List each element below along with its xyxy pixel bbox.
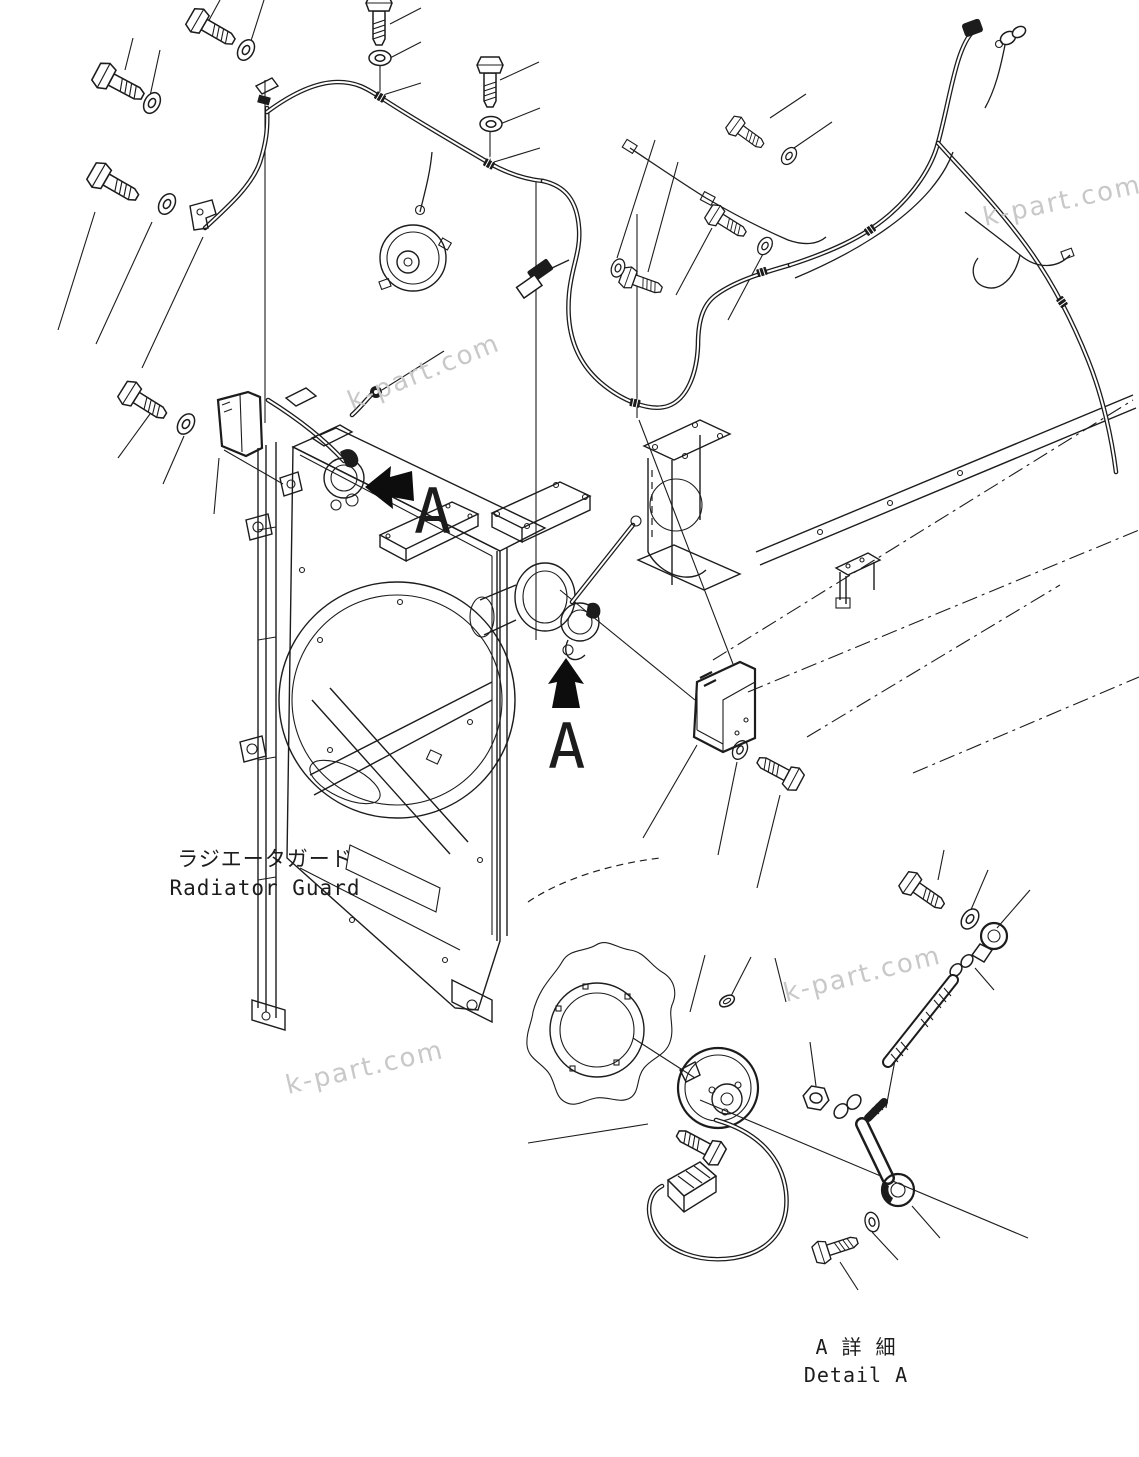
spacer-socket — [831, 1092, 863, 1121]
hex-bolt — [618, 265, 665, 300]
pin — [718, 993, 737, 1010]
washer — [174, 411, 198, 438]
adjuster-rod — [888, 980, 953, 1062]
hex-bolt — [90, 60, 149, 109]
rod-end — [972, 923, 1007, 962]
control-box — [492, 482, 590, 542]
horn-connector — [668, 1162, 716, 1212]
link-arm — [862, 1102, 914, 1206]
hex-bolt — [116, 378, 172, 427]
hex-bolt — [85, 159, 144, 209]
view-arrow-up-label: A — [548, 710, 585, 783]
harness-clamp — [755, 264, 769, 280]
harness-connector-mid — [517, 258, 569, 298]
watermark-text: k-part.com — [980, 170, 1139, 233]
labels: ラジエータガード Radiator Guard A 詳 細 Detail A — [169, 847, 908, 1387]
fan-motor — [379, 206, 451, 292]
washer — [155, 191, 179, 218]
washer — [480, 117, 502, 132]
harness-connector-top-right — [961, 18, 1027, 108]
mount-plate-outline — [527, 943, 675, 1105]
detail-label-en: Detail A — [804, 1363, 908, 1387]
hex-bolt — [366, 0, 392, 45]
watermark-text: k-part.com — [343, 328, 504, 416]
hex-bolt — [724, 114, 769, 154]
parts-diagram-canvas: A A — [0, 0, 1139, 1457]
watermarks: k-part.com k-part.com k-part.com k-part.… — [283, 170, 1139, 1101]
view-arrow-left: A — [365, 466, 451, 548]
harness-clamp — [629, 395, 642, 411]
washer — [958, 906, 983, 933]
hex-bolt — [897, 869, 950, 916]
washer — [369, 51, 391, 66]
mounting-bracket-large — [638, 420, 740, 590]
view-arrow-left-label: A — [414, 475, 451, 548]
washer — [863, 1211, 881, 1234]
view-arrow-up: A — [548, 658, 585, 783]
hex-bolt — [477, 57, 503, 107]
duct-ring — [470, 563, 575, 637]
detail-a-assembly — [527, 869, 1007, 1266]
detail-label-jp: A 詳 細 — [815, 1335, 896, 1359]
cover-bracket — [694, 662, 755, 752]
projection-lines — [265, 80, 733, 700]
machine-frame-phantom — [528, 395, 1139, 902]
horn-assembly-right — [561, 516, 641, 660]
watermark-text: k-part.com — [283, 1035, 447, 1101]
nut — [801, 1085, 830, 1111]
horn-disc — [678, 1048, 758, 1128]
wiring-harness — [190, 18, 1116, 472]
part-label-jp: ラジエータガード — [177, 847, 353, 871]
washer — [778, 145, 799, 168]
hex-bolt — [184, 5, 240, 53]
watermark-text: k-part.com — [780, 941, 944, 1009]
hex-bolt — [703, 202, 751, 243]
cover-plate — [218, 392, 262, 456]
part-label-en: Radiator Guard — [169, 876, 360, 900]
washer — [755, 235, 776, 258]
fasteners-main — [85, 0, 806, 793]
washer — [234, 37, 258, 64]
leader-lines — [58, 0, 1030, 1290]
parts-diagram-page: A A — [0, 0, 1139, 1457]
hex-bolt — [811, 1230, 861, 1266]
hex-bolt — [753, 749, 807, 793]
